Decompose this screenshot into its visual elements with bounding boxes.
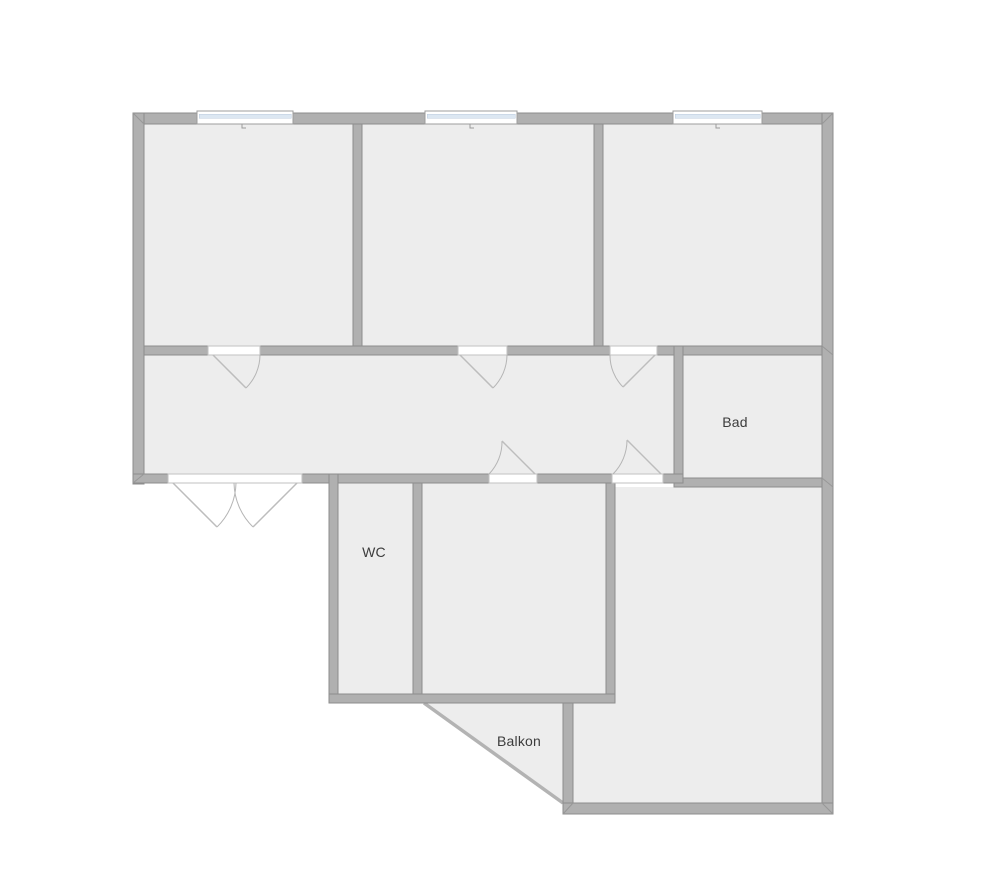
room-top-middle-floor	[362, 124, 594, 346]
wall-top-rooms-divider-2	[594, 124, 603, 346]
wall-corridor-bottom-seg4	[663, 474, 683, 483]
room-top-left-floor	[144, 124, 353, 346]
wall-balcony-right	[563, 694, 573, 803]
room-bottom-right-floor-lower	[573, 700, 822, 803]
wall-bad-bottom	[674, 478, 822, 487]
room-top-right-floor	[603, 124, 822, 346]
corridor-floor	[144, 355, 674, 474]
wall-outer-left	[133, 113, 144, 484]
door-opening-room-top-left	[208, 346, 260, 355]
wall-corridor-top-seg2	[260, 346, 458, 355]
window-glass	[199, 114, 291, 118]
wall-outer-bottom	[563, 803, 833, 814]
floorplan: Bad WC Balkon	[0, 0, 991, 873]
door-opening-room-bottom-right	[612, 474, 663, 483]
entrance-left-leaf	[173, 483, 217, 527]
wall-outer-right	[822, 113, 833, 814]
wall-corridor-bottom-seg3	[537, 474, 612, 483]
wall-corridor-top-seg1	[144, 346, 208, 355]
entrance-opening	[168, 474, 302, 483]
wall-bottom-middle-bottom	[329, 694, 615, 703]
wall-wc-left	[329, 474, 338, 703]
entrance-double-door	[173, 483, 297, 527]
window-glass	[427, 114, 515, 118]
bad-floor	[683, 355, 822, 478]
wall-top-rooms-divider-1	[353, 124, 362, 346]
room-label-balkon: Balkon	[497, 733, 541, 749]
wall-wc-right	[413, 483, 422, 694]
floorplan-canvas	[0, 0, 991, 873]
room-bottom-right-floor-upper	[615, 487, 822, 703]
wall-corridor-top-seg3	[507, 346, 610, 355]
door-opening-room-bottom-middle	[489, 474, 537, 483]
entrance-right-swing-arc	[234, 483, 253, 527]
room-label-bad: Bad	[722, 414, 748, 430]
entrance-right-leaf	[253, 483, 297, 527]
wall-bad-left	[674, 346, 683, 487]
door-opening-room-top-middle	[458, 346, 507, 355]
wall-bottom-rooms-divider	[606, 483, 615, 700]
door-opening-room-top-right	[610, 346, 657, 355]
entrance-left-swing-arc	[217, 483, 236, 527]
room-label-wc: WC	[362, 544, 386, 560]
window-glass	[675, 114, 760, 118]
wc-floor	[338, 483, 413, 694]
room-bottom-middle-floor	[422, 483, 606, 694]
